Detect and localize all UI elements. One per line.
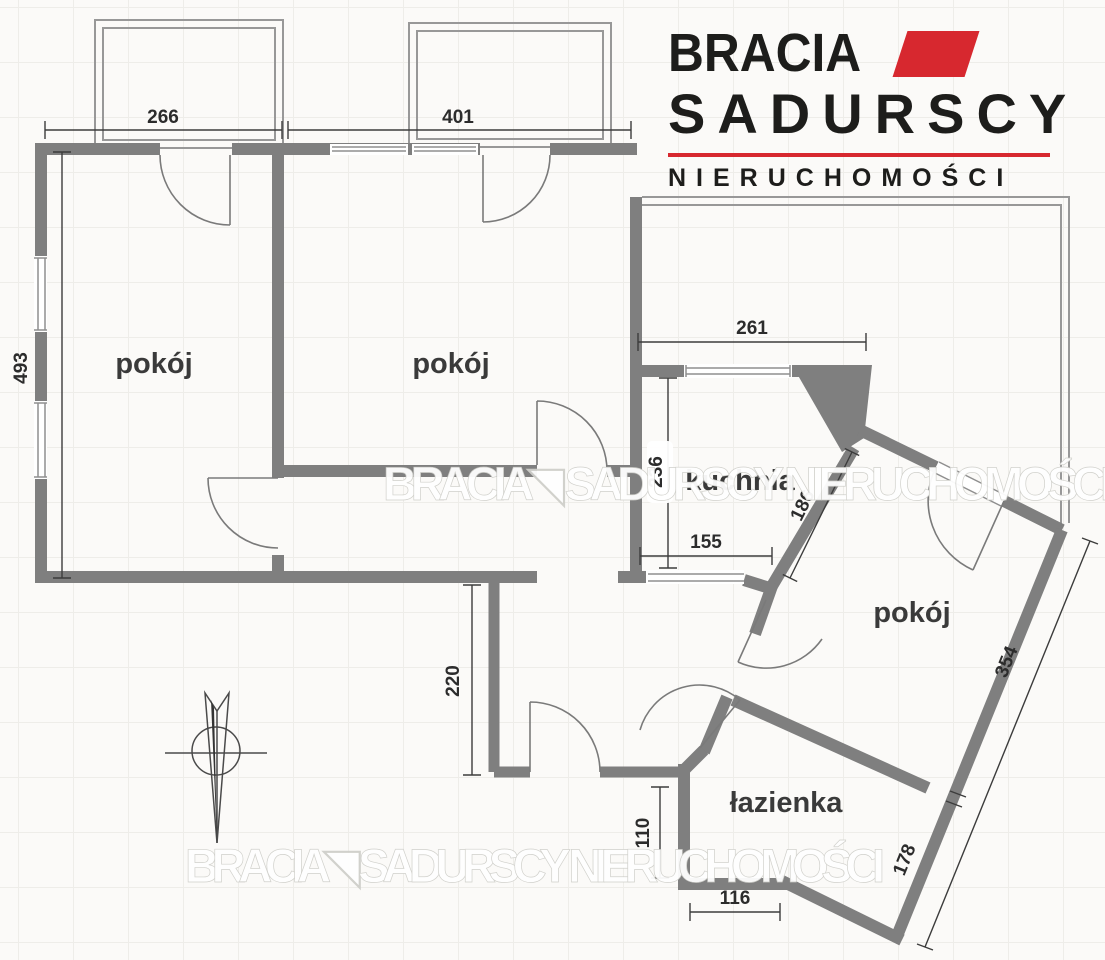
wall-hall-diag-b (704, 697, 727, 752)
balcony-2-outline (409, 23, 611, 147)
door-entrance (530, 702, 600, 772)
dim-line-220 (463, 585, 481, 775)
logo-brand-line1: BRACIA (668, 26, 861, 80)
walls (35, 143, 1062, 940)
logo-red-rule (668, 153, 1050, 157)
floorplan-image: 266 401 493 261 236 155 186 220 110 116 … (0, 0, 1105, 960)
red-parallelogram-icon (893, 31, 980, 77)
agency-logo: BRACIA SADURSCY NIERUCHOMOŚCI (668, 24, 1068, 193)
door-room2-balcony (483, 155, 550, 222)
dim-line-493 (53, 152, 71, 578)
dim-178: 178 (889, 841, 920, 878)
dim-493: 493 (11, 352, 32, 384)
door-room1-balcony (160, 155, 230, 225)
dim-401: 401 (442, 107, 474, 128)
balcony-1-inner (103, 28, 275, 140)
compass-icon (165, 693, 267, 843)
window-top-1 (330, 144, 408, 155)
wall-room3-bathroom-divider (733, 700, 928, 788)
wall-corner-wedge (792, 365, 872, 452)
room-label-lazienka: łazienka (730, 787, 844, 819)
logo-row-1: BRACIA (668, 24, 1068, 82)
dim-266: 266 (147, 107, 179, 128)
balcony-1-outline (95, 20, 283, 148)
compass-circle (192, 727, 240, 775)
door-room3 (738, 600, 822, 668)
door-room1 (208, 478, 278, 548)
dim-220: 220 (443, 665, 464, 697)
dimensions: 266 401 493 261 236 155 186 220 110 116 … (11, 107, 1098, 950)
watermark-bottom: BRACIA◥ SADURSCY NIERUCHOMOŚCI (185, 839, 885, 892)
logo-tagline: NIERUCHOMOŚCI (668, 164, 1068, 193)
dim-155: 155 (690, 532, 722, 553)
watermark-center: BRACIA◥ SADURSCY NIERUCHOMOŚCI (383, 457, 1105, 510)
room-label-pokoj-1: pokój (115, 348, 192, 380)
room-label-pokoj-3: pokój (873, 597, 950, 629)
opening-kitchen-hall (646, 570, 744, 584)
window-top-2 (412, 144, 478, 155)
logo-brand-line2: SADURSCY (668, 86, 1068, 142)
room-label-pokoj-2: pokój (412, 348, 489, 380)
wall-wing-right (897, 530, 1062, 936)
dim-261: 261 (736, 318, 768, 339)
window-kitchen (684, 364, 792, 378)
